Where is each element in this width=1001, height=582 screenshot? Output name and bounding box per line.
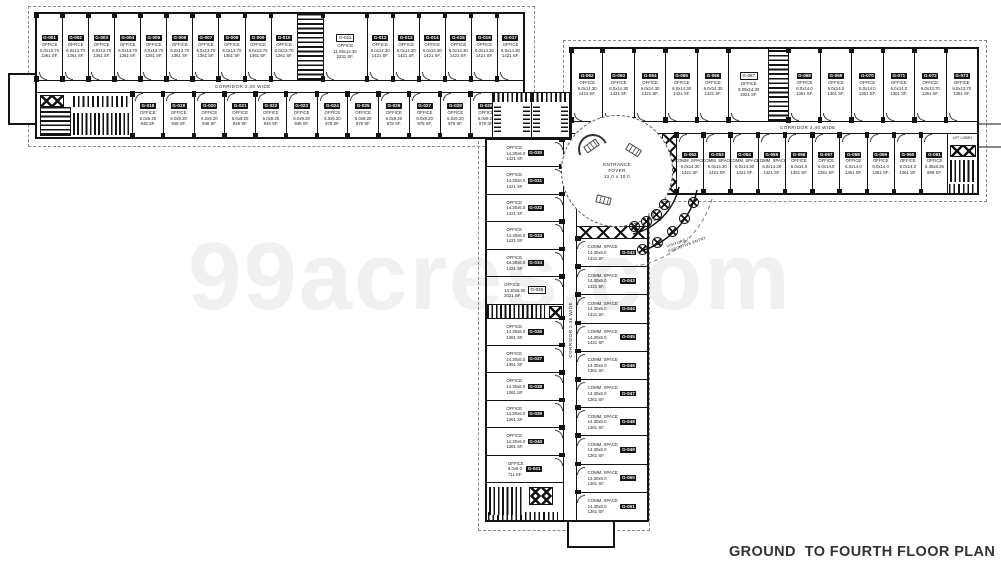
room: G-056OFFICE6.0x14.01361 SF.: [785, 134, 812, 193]
room: G-023OFFICE6.0x9.20948 SF.: [286, 93, 317, 137]
room: G-019OFFICE6.0x9.20948 SF.: [163, 93, 194, 137]
room-type: COMM. SPACE: [588, 470, 618, 475]
room-area: 1421 SF.: [506, 184, 523, 189]
room-dims: 6.0x14.0: [891, 86, 908, 91]
room-text: OFFICE8.0x6.0711 SF.: [508, 461, 524, 477]
room: OFFICE14.30x6.01421 SF.G-032: [487, 194, 563, 221]
room-number-badge: G-021: [232, 103, 248, 109]
room-number-badge: G-060: [900, 152, 916, 158]
room-type: OFFICE: [477, 42, 493, 47]
door-arc: [815, 134, 823, 142]
door-arc: [227, 93, 235, 101]
room-dims: 6.0x9.20: [263, 116, 280, 121]
room-area: 1421 SF.: [398, 53, 415, 58]
room-number-badge: G-006: [172, 35, 188, 41]
room-number-badge: G-025: [355, 103, 371, 109]
room-type: COMM. SPACE: [588, 357, 618, 362]
door-arc: [949, 113, 957, 121]
room-dims: 6.0x13.70: [921, 86, 940, 91]
room-dims: 6.0x14.0: [872, 164, 889, 169]
door-arc: [443, 93, 451, 101]
entrance-porch-bottom: [567, 520, 615, 548]
room: G-013OFFICE6.0x14.301421 SF.: [393, 14, 419, 80]
door-arc: [320, 93, 328, 101]
room-area: 978 SF.: [448, 121, 463, 126]
room: G-058OFFICE6.0x14.01361 SF.: [839, 134, 866, 193]
room-number-badge: G-012: [372, 35, 388, 41]
room-text: OFFICE14.30x6.01361 SF.: [506, 433, 525, 449]
room: G-012OFFICE6.0x14.301421 SF.: [367, 14, 393, 80]
room-number-badge: G-014: [424, 35, 440, 41]
plan-title: GROUND TO FOURTH FLOOR PLAN: [729, 544, 995, 560]
room-area: 1361 SF.: [197, 53, 214, 58]
door-arc: [166, 93, 174, 101]
room-dims: 6.0x14.30: [704, 86, 723, 91]
room-number-badge: G-047: [620, 391, 636, 397]
room-type: OFFICE: [873, 158, 889, 163]
room-number-badge: G-004: [120, 35, 136, 41]
door-arc: [197, 93, 205, 101]
room-area: 1421 SF.: [372, 53, 389, 58]
room: G-052COMM. SPACE6.0x14.301421 SF.: [676, 134, 703, 193]
room-type: OFFICE: [791, 158, 807, 163]
door-arc: [897, 134, 905, 142]
room: COMM. SPACE14.30x6.01361 SF.G-046: [577, 351, 647, 379]
room-dims: 14.30x6.0: [588, 504, 607, 509]
room-dims: 6.0x14.30: [609, 86, 628, 91]
room-dims: 14.30x6.0: [506, 357, 525, 362]
room-number-badge: G-062: [579, 73, 595, 79]
sofa-icon: [625, 143, 642, 158]
room-dims: 6.0x9.20: [232, 116, 249, 121]
room: G-069OFFICE6.0x14.01361 SF.: [820, 49, 851, 121]
door-arc: [555, 458, 563, 466]
room-dims: 6.0x14.30: [681, 164, 700, 169]
room: G-028OFFICE6.0x9.20978 SF.: [440, 93, 471, 137]
room-type: OFFICE: [818, 158, 834, 163]
room: G-009OFFICE6.0x13.701361 SF.: [245, 14, 271, 80]
room-number-badge: G-070: [859, 73, 875, 79]
room-dims: 6.0x9.20: [447, 116, 464, 121]
room-number-badge: G-064: [642, 73, 658, 79]
room-area: 1361 SF.: [922, 91, 939, 96]
room-dims: 6.0x14.30: [371, 48, 390, 53]
door-arc: [135, 93, 143, 101]
door-arc: [555, 142, 563, 150]
room: G-011OFFICE11.95x14.302231 SF.: [323, 14, 367, 80]
room-number-badge: G-015: [450, 35, 466, 41]
room-text: COMM. SPACE14.30x6.01361 SF.: [588, 470, 618, 486]
room-dims: 6.0x14.30: [762, 164, 781, 169]
room-type: COMM. SPACE: [729, 158, 759, 163]
room-area: 1361 SF.: [588, 425, 605, 430]
room-dims: 6.0x9.20: [324, 116, 341, 121]
room-number-badge: G-059: [873, 152, 889, 158]
room-area: 1361 SF.: [506, 335, 523, 340]
room-dims: 6.0x14.30: [397, 48, 416, 53]
door-arc: [289, 93, 297, 101]
room-area: 1361 SF.: [872, 170, 889, 175]
room-type: OFFICE: [372, 42, 388, 47]
room: G-065OFFICE6.0x14.301421 SF.: [665, 49, 696, 121]
door-arc: [577, 382, 585, 390]
room: G-001OFFICE6.0x13.701361 SF.: [37, 14, 62, 80]
room-text: OFFICE14.30x6.01361 SF.: [506, 351, 525, 367]
room-type: OFFICE: [172, 42, 188, 47]
room-dims: 14.30x6.0: [506, 411, 525, 416]
room-area: 1361 SF.: [250, 53, 267, 58]
room-area: 978 SF.: [325, 121, 340, 126]
room-type: OFFICE: [386, 110, 402, 115]
room-type: COMM. SPACE: [588, 385, 618, 390]
door-arc: [917, 113, 925, 121]
room-type: OFFICE: [506, 172, 522, 177]
room-number-badge: G-058: [845, 152, 861, 158]
door-arc: [117, 72, 125, 80]
room-type: OFFICE: [828, 80, 844, 85]
door-arc: [577, 467, 585, 475]
room-area: 948 SF.: [233, 121, 248, 126]
room-number-badge: G-011: [336, 34, 354, 42]
room: G-022OFFICE6.0x9.20948 SF.: [255, 93, 286, 137]
room-dims: 6.0x13.70: [144, 48, 163, 53]
room-area: 948 SF.: [264, 121, 279, 126]
room-number-badge: G-041: [526, 466, 542, 472]
room: G-068OFFICE6.0x14.01361 SF.: [788, 49, 819, 121]
room-text: OFFICE14.30x6.01421 SF.: [506, 145, 525, 161]
room: G-014OFFICE6.0x14.301421 SF.: [419, 14, 445, 80]
room-dims: 6.0x9.20: [293, 116, 310, 121]
room-number-badge: G-017: [502, 35, 518, 41]
room-number-badge: G-045: [620, 334, 636, 340]
room-number-badge: G-067: [740, 72, 758, 80]
room-number-badge: G-019: [171, 103, 187, 109]
room-dims: 6.0x9.20: [170, 116, 187, 121]
door-arc: [733, 134, 741, 142]
door-arc: [555, 197, 563, 205]
room-area: 1361 SF.: [506, 362, 523, 367]
room-area: 948 SF.: [202, 121, 217, 126]
room-dims: 6.35x8.25: [925, 164, 944, 169]
room-area: 1421 SF.: [736, 170, 753, 175]
room-dims: 14.30x6.0: [506, 178, 525, 183]
room-number-badge: G-049: [620, 447, 636, 453]
ent-lobby-label: ENT. LOBBY: [648, 212, 662, 222]
room: G-016OFFICE6.0x14.301421 SF.: [471, 14, 497, 80]
door-arc: [370, 72, 378, 80]
room-area: 1421 SF.: [610, 91, 627, 96]
room-type: OFFICE: [506, 351, 522, 356]
room-type: OFFICE: [198, 42, 214, 47]
room-area: 1361 SF.: [890, 91, 907, 96]
column-icon: [688, 197, 699, 208]
toilet-block: [492, 92, 570, 138]
room-area: 711 SF.: [508, 472, 522, 477]
door-arc: [679, 134, 687, 142]
room-type: OFFICE: [337, 43, 353, 48]
room-area: 1421 SF.: [502, 53, 519, 58]
room: G-004OFFICE6.0x13.701361 SF.: [114, 14, 140, 80]
room-number-badge: G-030: [528, 150, 544, 156]
room-number-badge: G-065: [674, 73, 690, 79]
room-number-badge: G-055: [764, 152, 780, 158]
door-arc: [555, 430, 563, 438]
door-arc: [577, 410, 585, 418]
room-area: 1421 SF.: [673, 91, 690, 96]
room-area: 1421 SF.: [579, 91, 596, 96]
door-arc: [258, 93, 266, 101]
room-area: 698 SF.: [927, 170, 942, 175]
room-dims: 6.0x13.70: [66, 48, 85, 53]
room-type: OFFICE: [506, 433, 522, 438]
room-dims: 6.0x13.70: [196, 48, 215, 53]
door-arc: [761, 134, 769, 142]
room-area: 1361 SF.: [827, 91, 844, 96]
door-arc: [870, 134, 878, 142]
door-arc: [39, 72, 47, 80]
room-type: OFFICE: [201, 110, 217, 115]
door-arc: [700, 113, 708, 121]
room-type: OFFICE: [579, 80, 595, 85]
room: G-008OFFICE6.0x13.701361 SF.: [218, 14, 244, 80]
room-number-badge: G-057: [818, 152, 834, 158]
room-type: OFFICE: [68, 42, 84, 47]
room-number-badge: G-032: [528, 205, 544, 211]
service-block: [37, 93, 132, 137]
top-wing-lower-room-row: G-018OFFICE6.0x9.20948 SF.G-019OFFICE6.0…: [37, 93, 523, 137]
room: G-062OFFICE6.0x14.301421 SF.: [572, 49, 602, 121]
top-wing-upper-room-row: G-001OFFICE6.0x13.701361 SF.G-002OFFICE6…: [37, 14, 523, 80]
room: G-054COMM. SPACE6.0x14.301421 SF.: [730, 134, 757, 193]
door-arc: [448, 72, 456, 80]
room: G-063OFFICE6.0x14.301421 SF.: [602, 49, 633, 121]
corridor-top-wing: CORRIDOR 2.00 WIDE: [37, 80, 523, 93]
room-number-badge: G-028: [447, 103, 463, 109]
room-text: COMM. SPACE14.30x6.01361 SF.: [588, 498, 618, 514]
room-type: OFFICE: [503, 42, 519, 47]
room-dims: 14.30x6.0: [506, 384, 525, 389]
door-arc: [422, 72, 430, 80]
room-dims: 6.0x14.0: [859, 86, 876, 91]
room-number-badge: G-051: [620, 504, 636, 510]
toilet-room: [493, 93, 531, 137]
room-type: COMM. SPACE: [702, 158, 732, 163]
room-number-badge: G-071: [891, 73, 907, 79]
room-type: COMM. SPACE: [588, 498, 618, 503]
room-type: OFFICE: [146, 42, 162, 47]
room-number-badge: G-020: [201, 103, 217, 109]
room: G-057OFFICE6.0x14.01361 SF.: [812, 134, 839, 193]
door-arc: [412, 93, 420, 101]
room-dims: 6.0x14.30: [423, 48, 442, 53]
room-number-badge: G-007: [198, 35, 214, 41]
room-dims: 6.0x14.30: [708, 164, 727, 169]
room-dims: 6.0x14.0: [900, 164, 917, 169]
room-type: OFFICE: [42, 42, 58, 47]
lift-lobby-label: LIFT LOBBY: [953, 136, 973, 140]
room: G-071OFFICE6.0x14.01361 SF.: [883, 49, 914, 121]
room-area: 1361 SF.: [276, 53, 293, 58]
room-area: 1361 SF.: [791, 170, 808, 175]
room: G-053COMM. SPACE6.0x14.301421 SF.: [703, 134, 730, 193]
room-dims: 6.0x13.70: [170, 48, 189, 53]
door-arc: [854, 113, 862, 121]
floor-plan-canvas: G-001OFFICE6.0x13.701361 SF.G-002OFFICE6…: [0, 0, 1001, 582]
room: COMM. SPACE14.30x6.01361 SF.G-048: [577, 407, 647, 435]
room: COMM. SPACE14.30x6.01361 SF.G-047: [577, 379, 647, 407]
door-arc: [924, 134, 932, 142]
room-area: 1421 SF.: [506, 156, 523, 161]
room-type: OFFICE: [891, 80, 907, 85]
room-area: 1361 SF.: [899, 170, 916, 175]
room-area: 1361 SF.: [796, 91, 813, 96]
room-area: 1361 SF.: [145, 53, 162, 58]
room-area: 1421 SF.: [506, 211, 523, 216]
door-arc: [788, 134, 796, 142]
room-number-badge: G-001: [42, 35, 58, 41]
room-dims: 8.0x6.0: [508, 466, 522, 471]
room-dims: 14.30x6.0: [588, 419, 607, 424]
room-type: COMM. SPACE: [588, 442, 618, 447]
column-icon: [659, 199, 670, 210]
room-type: OFFICE: [324, 110, 340, 115]
room-text: COMM. SPACE14.30x6.01361 SF.: [588, 414, 618, 430]
room-dims: 14.30x6.0: [588, 476, 607, 481]
room-type: OFFICE: [508, 461, 524, 466]
room: G-007OFFICE6.0x13.701361 SF.: [192, 14, 218, 80]
stairs: [768, 49, 788, 121]
door-arc: [668, 113, 676, 121]
door-arc: [396, 72, 404, 80]
room-number-badge: G-066: [705, 73, 721, 79]
room: G-003OFFICE6.0x13.701361 SF.: [88, 14, 114, 80]
room-dims: 14.30x6.0: [588, 363, 607, 368]
room-area: 1361 SF.: [588, 509, 605, 514]
room-type: OFFICE: [860, 80, 876, 85]
room-number-badge: G-050: [620, 475, 636, 481]
room-dims: 6.0x13.70: [40, 48, 59, 53]
top-wing: G-001OFFICE6.0x13.701361 SF.G-002OFFICE6…: [35, 12, 525, 139]
room-type: OFFICE: [276, 42, 292, 47]
room-area: 2021 SF.: [740, 92, 757, 97]
corridor-label: CORRIDOR 2.00 WIDE: [215, 84, 271, 89]
room-number-badge: G-008: [224, 35, 240, 41]
room-area: 1361 SF.: [93, 53, 110, 58]
room-type: OFFICE: [506, 378, 522, 383]
room-number-badge: G-024: [324, 103, 340, 109]
room-dims: 6.0x14.0: [796, 86, 813, 91]
door-arc: [274, 72, 282, 80]
room: OFFICE14.30x6.01421 SF.G-030: [487, 140, 563, 166]
room: COMM. SPACE14.30x6.01361 SF.G-049: [577, 435, 647, 463]
room-type: COMM. SPACE: [757, 158, 787, 163]
room-dims: 6.0x9.20: [201, 116, 218, 121]
room-number-badge: G-003: [94, 35, 110, 41]
room-text: COMM. SPACE14.30x6.01361 SF.: [588, 385, 618, 401]
door-arc: [842, 134, 850, 142]
room: G-025OFFICE6.0x9.20978 SF.: [347, 93, 378, 137]
room: COMM. SPACE14.30x6.01361 SF.G-050: [577, 464, 647, 492]
room-type: OFFICE: [355, 110, 371, 115]
room: G-064OFFICE6.0x14.301421 SF.: [634, 49, 665, 121]
room-area: 1361 SF.: [953, 91, 970, 96]
room: G-070OFFICE6.0x14.01361 SF.: [851, 49, 882, 121]
room-type: OFFICE: [705, 80, 721, 85]
room-area: 1361 SF.: [588, 453, 605, 458]
room-dims: 6.0x9.20: [140, 116, 157, 121]
room-area: 948 SF.: [141, 121, 156, 126]
corridor-label: CORRIDOR 2.40 WIDE: [780, 125, 836, 130]
door-arc: [195, 72, 203, 80]
room-number-badge: G-023: [294, 103, 310, 109]
room-number-badge: G-040: [528, 439, 544, 445]
room-dims: 8.05x14.30: [738, 87, 759, 92]
room-area: 978 SF.: [356, 121, 371, 126]
room-type: OFFICE: [263, 110, 279, 115]
room-text: OFFICE14.30x6.01421 SF.: [506, 200, 525, 216]
room-dims: 14.30x6.0: [588, 335, 607, 340]
room-number-badge: G-072: [922, 73, 938, 79]
room-dims: 6.0x14.30: [449, 48, 468, 53]
room-text: OFFICE14.30x6.01421 SF.: [506, 172, 525, 188]
room-number-badge: G-068: [797, 73, 813, 79]
room-area: 1361 SF.: [588, 481, 605, 486]
right-wing-upper-room-row: G-062OFFICE6.0x14.301421 SF.G-063OFFICE6…: [572, 49, 977, 121]
room: G-020OFFICE6.0x9.20948 SF.: [194, 93, 225, 137]
room-area: 978 SF.: [387, 121, 402, 126]
room-dims: 6.0x14.30: [672, 86, 691, 91]
room-type: OFFICE: [294, 110, 310, 115]
toilet-room: [531, 93, 570, 137]
room-dims: 6.0x13.70: [275, 48, 294, 53]
room-type: OFFICE: [741, 81, 757, 86]
room-dims: 6.0x13.70: [118, 48, 137, 53]
room-text: COMM. SPACE14.30x6.01361 SF.: [588, 442, 618, 458]
stairs: [297, 14, 323, 80]
room-number-badge: G-061: [926, 152, 942, 158]
room: G-073OFFICE6.0x13.701361 SF.: [946, 49, 977, 121]
room-number-badge: G-053: [709, 152, 725, 158]
room-type: OFFICE: [140, 110, 156, 115]
door-arc: [577, 438, 585, 446]
room-dims: 6.0x14.30: [641, 86, 660, 91]
room-type: OFFICE: [120, 42, 136, 47]
room-type: COMM. SPACE: [588, 414, 618, 419]
door-arc: [350, 93, 358, 101]
room-type: OFFICE: [424, 42, 440, 47]
door-arc: [886, 113, 894, 121]
room-dims: 14.30x6.0: [588, 447, 607, 452]
room-dims: 14.30x6.0: [506, 439, 525, 444]
room: G-015OFFICE6.0x14.301421 SF.: [445, 14, 471, 80]
room-dims: 6.0x13.70: [223, 48, 242, 53]
door-arc: [169, 72, 177, 80]
room-number-badge: G-018: [140, 103, 156, 109]
room: OFFICE14.30x6.01361 SF.G-040: [487, 427, 563, 454]
room-number-badge: G-048: [620, 419, 636, 425]
door-arc: [221, 72, 229, 80]
room-dims: 6.0x9.20: [416, 116, 433, 121]
door-arc: [555, 403, 563, 411]
room-dims: 6.0x14.30: [735, 164, 754, 169]
door-arc: [574, 113, 582, 121]
room-area: 1361 SF.: [818, 170, 835, 175]
room: G-006OFFICE6.0x13.701361 SF.: [166, 14, 192, 80]
room-text: COMM. SPACE14.30x6.01361 SF.: [588, 357, 618, 373]
door-arc: [381, 93, 389, 101]
door-arc: [91, 72, 99, 80]
room: COMM. SPACE14.30x6.01361 SF.G-051: [577, 492, 647, 520]
